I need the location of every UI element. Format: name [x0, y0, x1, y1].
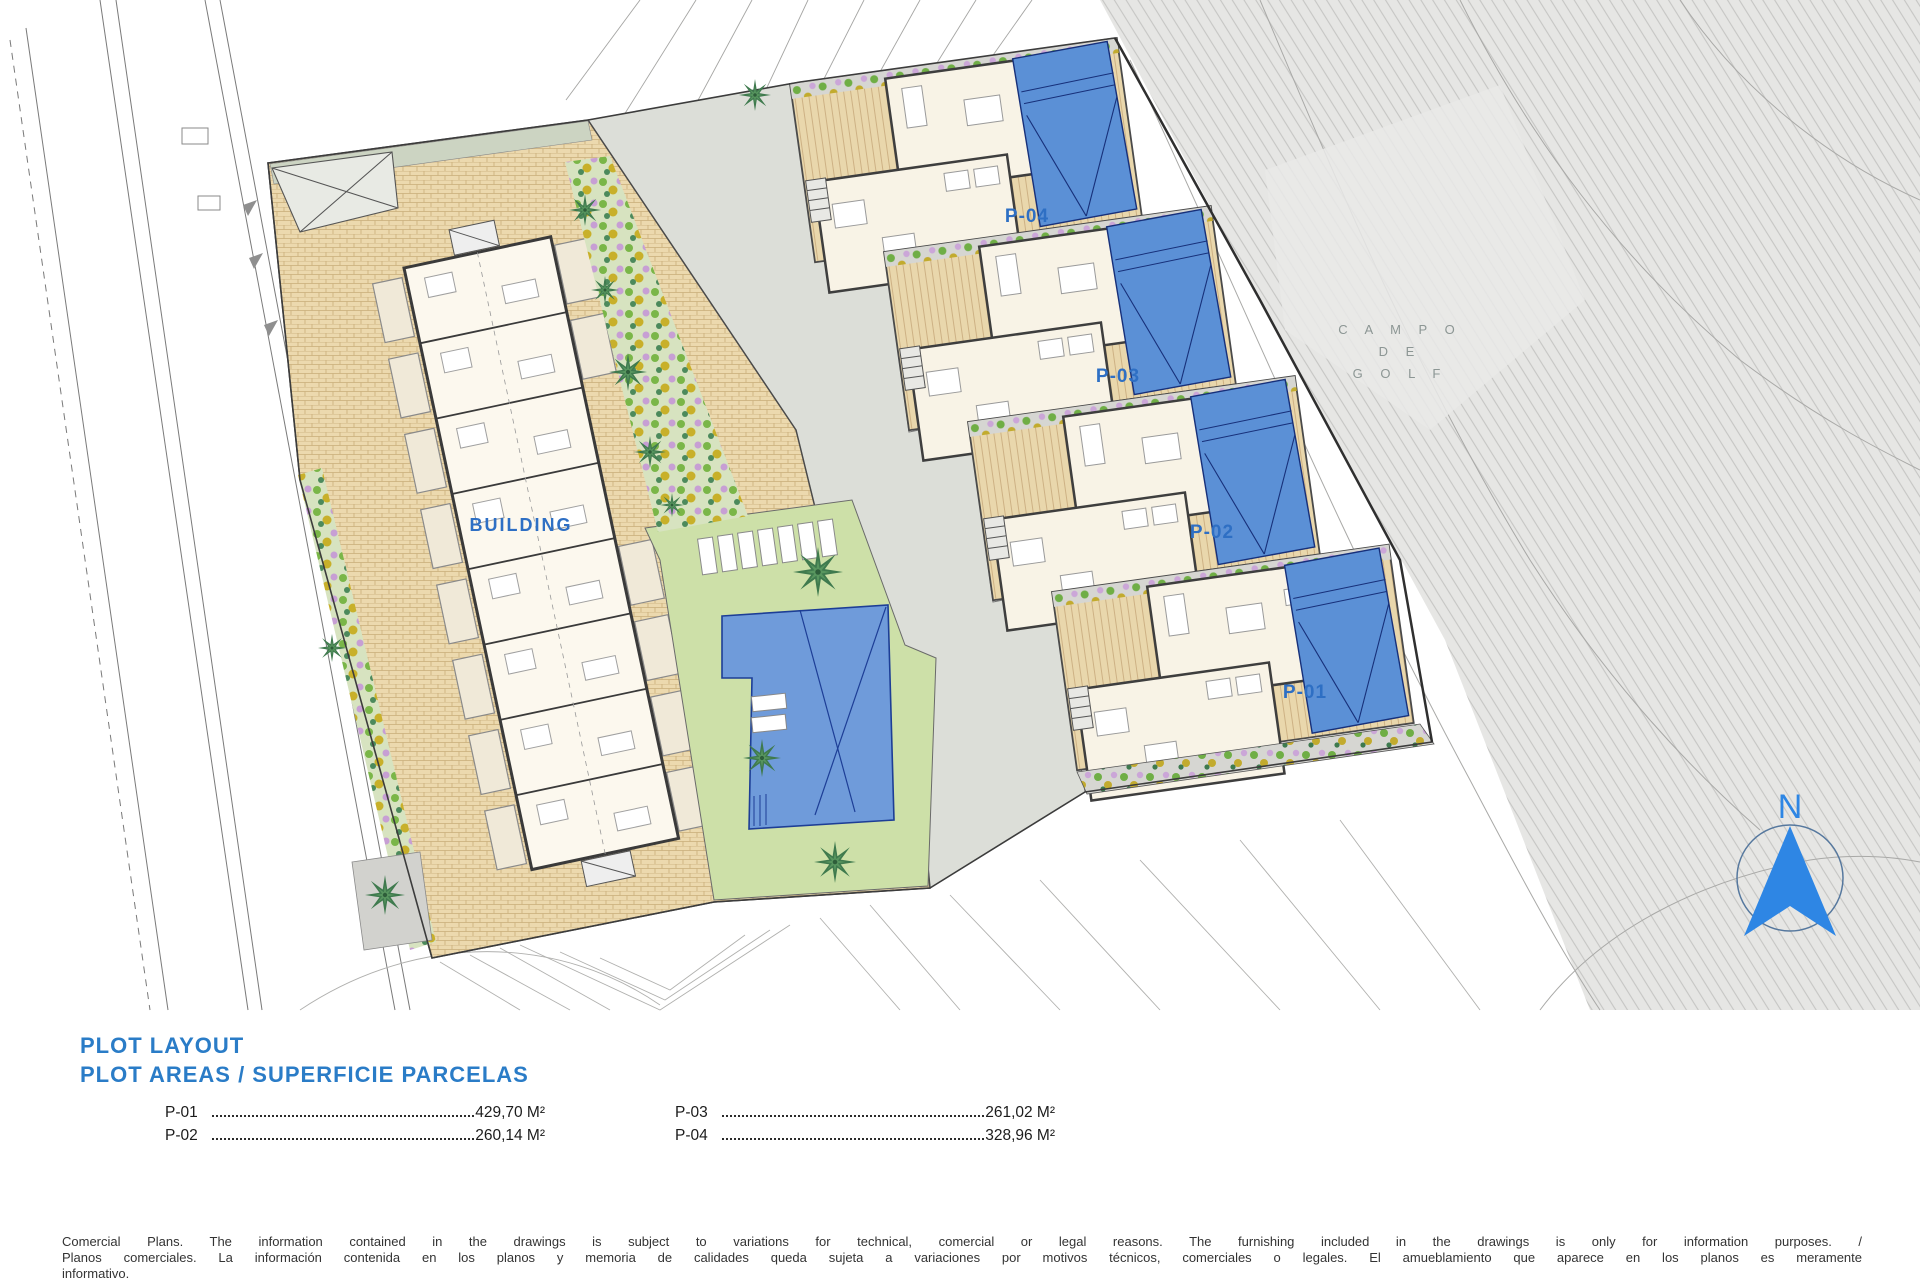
disclaimer: Comercial Plans. The information contain…: [62, 1234, 1862, 1280]
plot-area-row-p01: P-01 429,70 M²: [165, 1104, 545, 1122]
road-direction-arrows: [243, 200, 278, 336]
plot-area-label: P-04: [675, 1127, 721, 1145]
golf-label-line2: D E: [1379, 344, 1422, 359]
plot-label-p04: P-04: [1005, 206, 1049, 227]
disclaimer-line-en: Comercial Plans. The information contain…: [62, 1234, 1862, 1250]
golf-label-line1: C A M P O: [1338, 322, 1461, 337]
legend-subtitle: PLOT AREAS / SUPERFICIE PARCELAS: [80, 1060, 1055, 1090]
legend-title: PLOT LAYOUT: [80, 1032, 1055, 1060]
site-plan-page: C A M P O D E G O L F: [0, 0, 1920, 1280]
leader-dots: [212, 1137, 474, 1140]
leader-dots: [722, 1114, 984, 1117]
plot-label-p02: P-02: [1190, 522, 1234, 543]
plot-areas-list: P-01 429,70 M² P-02 260,14 M² P-03 261,0…: [165, 1104, 1055, 1145]
building-label: BUILDING: [470, 515, 573, 535]
north-label: N: [1778, 788, 1803, 826]
plot-label-p01: P-01: [1283, 682, 1327, 703]
golf-label-line3: G O L F: [1353, 366, 1448, 381]
plot-area-value: 260,14 M²: [475, 1127, 545, 1145]
plot-area-row-p02: P-02 260,14 M²: [165, 1127, 545, 1145]
leader-dots: [722, 1137, 984, 1140]
plot-area-row-p04: P-04 328,96 M²: [675, 1127, 1055, 1145]
legend: PLOT LAYOUT PLOT AREAS / SUPERFICIE PARC…: [80, 1032, 1055, 1145]
plot-area-label: P-02: [165, 1127, 211, 1145]
disclaimer-line-es: Planos comerciales. La información conte…: [62, 1250, 1862, 1266]
plot-area-label: P-03: [675, 1104, 721, 1122]
plot-label-p03: P-03: [1096, 366, 1140, 387]
site-plan-drawing: C A M P O D E G O L F: [0, 0, 1920, 1012]
plot-area-row-p03: P-03 261,02 M²: [675, 1104, 1055, 1122]
plot-area-value: 429,70 M²: [475, 1104, 545, 1122]
plot-area-value: 261,02 M²: [985, 1104, 1055, 1122]
disclaimer-line-3: informativo.: [62, 1266, 1862, 1280]
plot-area-value: 328,96 M²: [985, 1127, 1055, 1145]
leader-dots: [212, 1114, 474, 1117]
plot-area-label: P-01: [165, 1104, 211, 1122]
